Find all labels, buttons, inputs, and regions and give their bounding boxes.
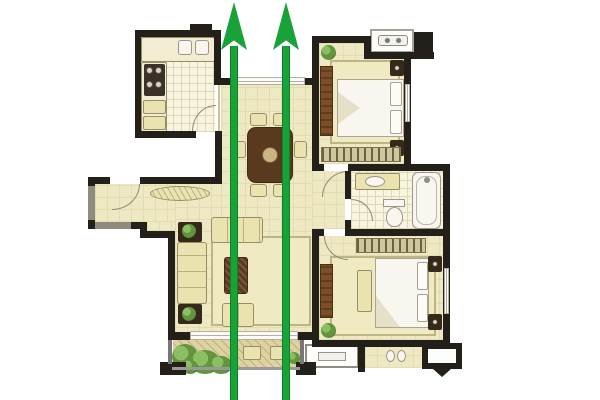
- wall-balcony-side-right: [300, 340, 304, 364]
- kitchen-threshold: [218, 85, 220, 131]
- bedroom-upper-plant: [321, 45, 336, 60]
- wall-master-top-a: [312, 229, 324, 236]
- rear-platform-glyph: [318, 352, 346, 361]
- window-master: [444, 268, 449, 314]
- wall-entry-bottom-gray: [95, 222, 133, 229]
- dining-chair-bottom-1: [250, 184, 267, 197]
- kitchen-cabinet-2: [143, 116, 166, 130]
- wall-bedroom-upper-left: [312, 36, 319, 171]
- draft-arrow-left-head: [221, 2, 247, 50]
- wall-entry-left-cap-top: [88, 177, 95, 186]
- slipper-1: [386, 350, 395, 362]
- side-table-bottom-plant: [182, 307, 196, 321]
- wall-master-left: [312, 236, 319, 347]
- wall-bedroom-upper-top: [312, 36, 370, 43]
- dining-chair-right: [294, 141, 307, 158]
- master-cabinet: [320, 264, 333, 318]
- entry-console-table: [150, 186, 210, 201]
- master-plant: [321, 323, 336, 338]
- bedroom-upper-closet: [321, 147, 401, 162]
- dining-chair-top-1: [250, 113, 267, 126]
- master-pillow-1: [417, 262, 428, 290]
- floor-plan-figure: [0, 0, 600, 400]
- kitchen-sink-right: [195, 40, 209, 55]
- draft-arrow-left-shaft: [230, 46, 238, 400]
- entry-step-floor: [147, 222, 175, 231]
- wall-kitchen-top: [135, 30, 221, 37]
- draft-arrow-right-head: [273, 2, 299, 50]
- toilet-tank: [383, 199, 405, 207]
- long-sofa: [177, 242, 207, 304]
- master-bench: [357, 270, 372, 312]
- bedroom-upper-wardrobe: [320, 66, 333, 136]
- master-nightstand-1: [428, 256, 442, 272]
- wall-living-left: [168, 231, 175, 340]
- slipper-2: [397, 350, 406, 362]
- burner-3: [146, 81, 153, 88]
- bathtub: [412, 172, 441, 229]
- master-nightstand-2: [428, 314, 442, 330]
- window-bedroom-upper: [405, 84, 410, 122]
- bedroom-upper-pillow-2: [390, 110, 402, 134]
- wall-living-bottom-b: [298, 332, 318, 340]
- master-closet: [356, 238, 426, 253]
- armchair: [222, 303, 254, 327]
- wall-bedroom-upper-bottom-b: [348, 164, 450, 171]
- wall-master-top-b: [348, 229, 450, 236]
- balcony-stool-1: [243, 346, 261, 360]
- wall-rear-balcony-stub: [358, 344, 365, 372]
- bedroom-upper-pillow-1: [390, 82, 402, 106]
- burner-2: [155, 67, 162, 74]
- balcony-plant-3: [210, 356, 232, 374]
- wall-entry-top-b: [140, 177, 222, 184]
- wall-top-right-nub: [414, 32, 433, 54]
- wall-bath-left-a: [345, 171, 351, 199]
- burner-1: [146, 67, 153, 74]
- side-table-top-plant: [182, 224, 196, 238]
- ac-platform-bottom: [422, 343, 462, 369]
- wall-kitchen-right: [214, 30, 221, 85]
- wall-entry-left-cap-bot: [88, 220, 95, 229]
- wall-bedroom-upper-bottom-a: [319, 164, 324, 171]
- wall-kitchen-left: [135, 30, 141, 138]
- ac-unit-top-icon: [378, 35, 408, 46]
- draft-arrow-right-shaft: [282, 46, 290, 400]
- ac-platform-bottom-point: [433, 369, 451, 377]
- wall-entry-top-a: [95, 177, 110, 184]
- burner-4: [155, 81, 162, 88]
- wall-living-bottom-a: [168, 332, 190, 340]
- wall-balcony-side-left: [168, 340, 172, 364]
- wall-right-outer: [443, 164, 450, 347]
- kitchen-sink-left: [178, 40, 192, 55]
- bathroom-basin: [365, 176, 385, 187]
- toilet-bowl: [386, 207, 403, 227]
- wall-kitchen-bottom: [135, 131, 196, 138]
- kitchen-cabinet-1: [143, 100, 166, 114]
- bedroom-upper-nightstand-1: [390, 60, 404, 76]
- dining-centerpiece: [262, 147, 278, 163]
- master-pillow-2: [417, 294, 428, 322]
- window-dining-front: [233, 77, 305, 85]
